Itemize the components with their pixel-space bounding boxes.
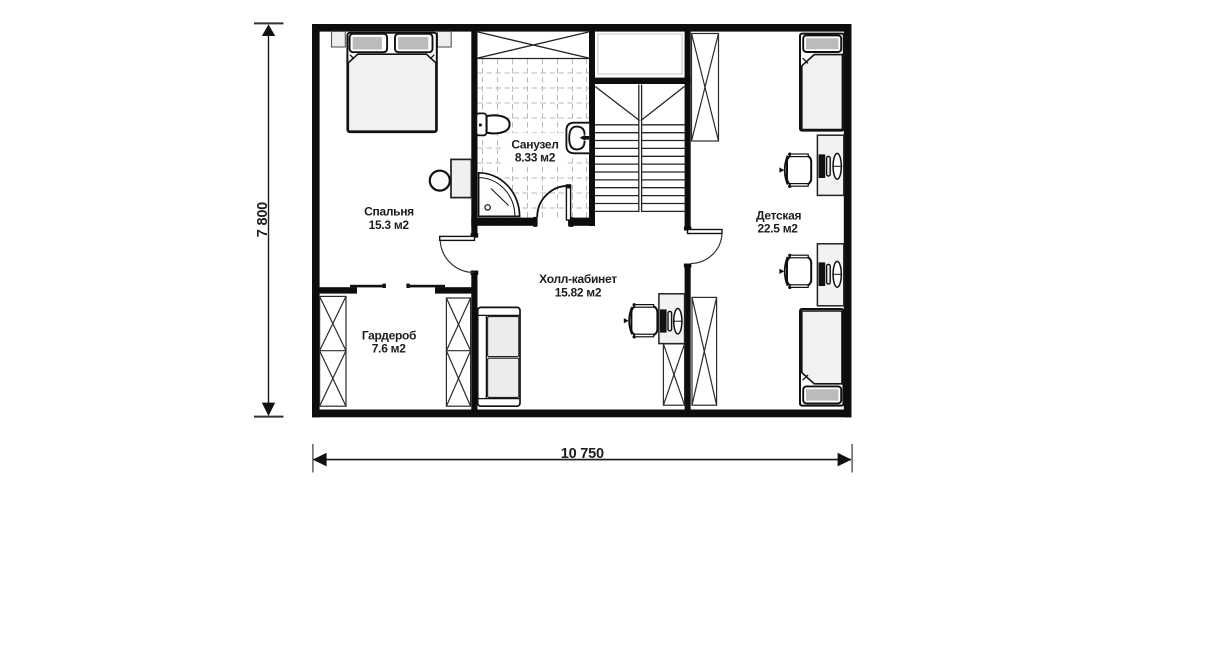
svg-text:10 750: 10 750 — [561, 446, 604, 462]
svg-text:Гардероб: Гардероб — [362, 328, 416, 342]
svg-text:Холл-кабинет: Холл-кабинет — [539, 272, 617, 286]
svg-text:15.3 м2: 15.3 м2 — [369, 218, 410, 232]
svg-text:22.5 м2: 22.5 м2 — [758, 221, 799, 235]
svg-text:Детская: Детская — [756, 208, 801, 222]
svg-text:7 800: 7 800 — [255, 202, 271, 237]
svg-text:8.33 м2: 8.33 м2 — [515, 151, 556, 165]
svg-text:Спальня: Спальня — [364, 205, 414, 219]
svg-text:Санузел: Санузел — [511, 137, 558, 151]
svg-text:15.82 м2: 15.82 м2 — [555, 286, 602, 300]
svg-text:7.6 м2: 7.6 м2 — [372, 342, 406, 356]
